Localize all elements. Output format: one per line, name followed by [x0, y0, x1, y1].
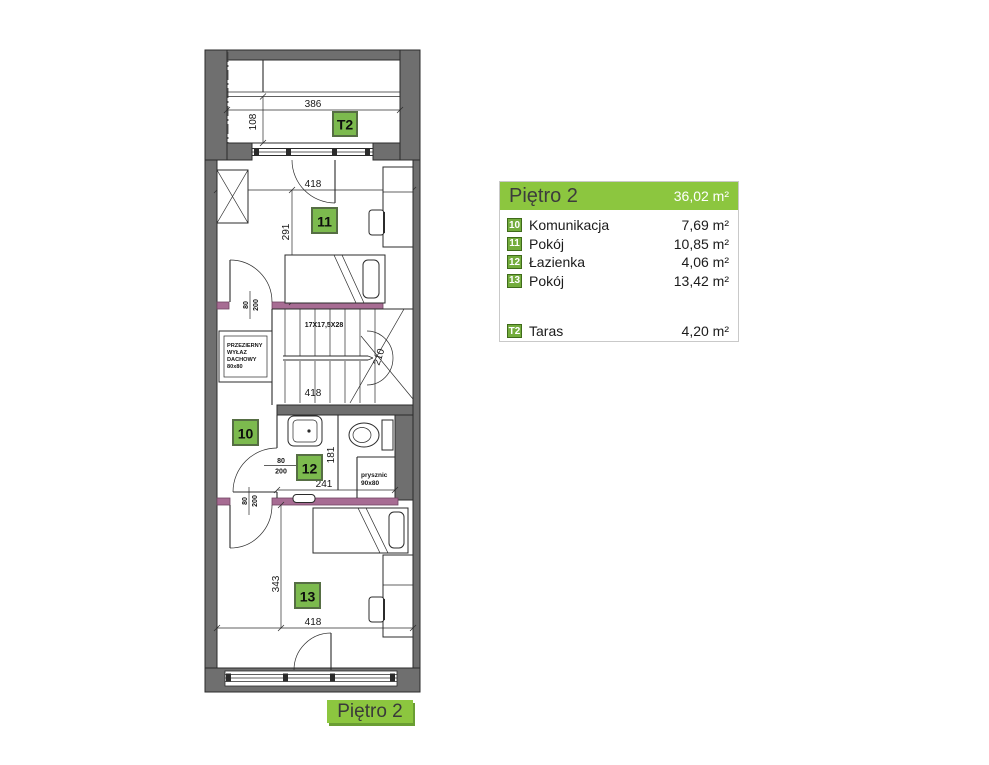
- legend-row: 11 Pokój 10,85 m²: [507, 235, 729, 254]
- floor-plan-drawing: 386 108 T2 418 291: [0, 0, 989, 765]
- dim-stairs-width: 418: [305, 388, 322, 399]
- terrace-badge-label: T2: [337, 117, 354, 133]
- door-label-room11: 80 200: [243, 291, 260, 319]
- svg-text:PRZEZIERNY: PRZEZIERNY: [227, 343, 263, 349]
- terrace-badge: T2: [507, 324, 522, 338]
- dim-room11-depth: 291: [281, 223, 292, 240]
- terrace-label: Taras: [529, 323, 682, 339]
- room-badge: 13: [507, 274, 522, 288]
- bed-room11: [285, 255, 385, 303]
- radiator: [293, 495, 315, 503]
- dim-room13-width: 418: [305, 617, 322, 628]
- svg-text:200: 200: [275, 469, 287, 476]
- roof-hatch: PRZEZIERNY WYŁAZ DACHOWY 80x80: [219, 331, 272, 382]
- desk-room13: [369, 555, 413, 637]
- room-area: 10,85 m²: [674, 236, 729, 252]
- legend-row-terrace: T2 Taras 4,20 m²: [507, 322, 729, 341]
- terrace-door: [252, 148, 373, 203]
- legend-rows: 10 Komunikacja 7,69 m² 11 Pokój 10,85 m²…: [500, 210, 738, 341]
- legend-row: 12 Łazienka 4,06 m²: [507, 253, 729, 272]
- dim-terrace-depth: 108: [248, 113, 259, 130]
- dim-room13-depth: 343: [271, 575, 282, 592]
- room-label: Łazienka: [529, 254, 682, 270]
- toilet: [349, 420, 393, 450]
- floor-plan-page: 386 108 T2 418 291: [0, 0, 989, 765]
- room-11: 418 291 11: [214, 167, 416, 319]
- svg-text:80x80: 80x80: [227, 364, 243, 370]
- svg-text:90x80: 90x80: [361, 480, 379, 487]
- wardrobe: [217, 170, 248, 223]
- room-badge: 11: [507, 237, 522, 251]
- room-badge: 12: [507, 255, 522, 269]
- desk-room11: [369, 167, 413, 247]
- svg-text:WYŁAZ: WYŁAZ: [227, 350, 247, 356]
- legend-title: Piętro 2: [509, 185, 578, 208]
- room-label: Pokój: [529, 236, 674, 252]
- svg-text:80: 80: [277, 458, 285, 465]
- room-area: 13,42 m²: [674, 273, 729, 289]
- legend-row: 13 Pokój 13,42 m²: [507, 272, 729, 291]
- bed-room13: [313, 508, 408, 553]
- staircase: 17X17,5X28 210 418: [272, 309, 413, 405]
- room-label: Komunikacja: [529, 217, 682, 233]
- stairs-spec-label: 17X17,5X28: [305, 322, 344, 329]
- sink: [288, 416, 322, 446]
- shower: prysznic 90x80: [361, 472, 388, 487]
- legend-header: Piętro 2 36,02 m²: [500, 182, 738, 210]
- room11-badge-label: 11: [317, 214, 332, 230]
- svg-text:80: 80: [242, 497, 249, 505]
- door-label-room13: 80 200: [242, 487, 259, 515]
- svg-text:200: 200: [252, 495, 259, 507]
- terrace-area: 4,20 m²: [682, 323, 729, 339]
- svg-text:DACHOWY: DACHOWY: [227, 357, 257, 363]
- floor-caption: Piętro 2: [327, 700, 413, 723]
- door-label-bath: 80 200: [264, 458, 298, 476]
- bath-badge-label: 12: [302, 461, 318, 477]
- hall-badge-label: 10: [238, 426, 254, 442]
- dim-bath-depth: 181: [326, 446, 337, 463]
- svg-text:80: 80: [243, 301, 250, 309]
- bottom-window: [225, 671, 397, 686]
- dim-room11-width: 418: [305, 179, 322, 190]
- dim-stairs-run: 210: [372, 347, 388, 367]
- dim-terrace-width: 386: [305, 99, 322, 110]
- svg-text:200: 200: [253, 299, 260, 311]
- legend-panel: Piętro 2 36,02 m² 10 Komunikacja 7,69 m²…: [499, 181, 739, 342]
- room-area: 4,06 m²: [682, 254, 729, 270]
- svg-text:prysznic: prysznic: [361, 472, 388, 479]
- hall-and-bath: 10 80 200 pr: [233, 415, 398, 503]
- room13-badge-label: 13: [300, 589, 316, 605]
- legend-row: 10 Komunikacja 7,69 m²: [507, 216, 729, 235]
- legend-total-area: 36,02 m²: [674, 188, 729, 204]
- room-badge: 10: [507, 218, 522, 232]
- room-area: 7,69 m²: [682, 217, 729, 233]
- terrace: 386 108 T2: [224, 52, 403, 146]
- room-13: 80 200 343 418: [214, 487, 416, 670]
- room-label: Pokój: [529, 273, 674, 289]
